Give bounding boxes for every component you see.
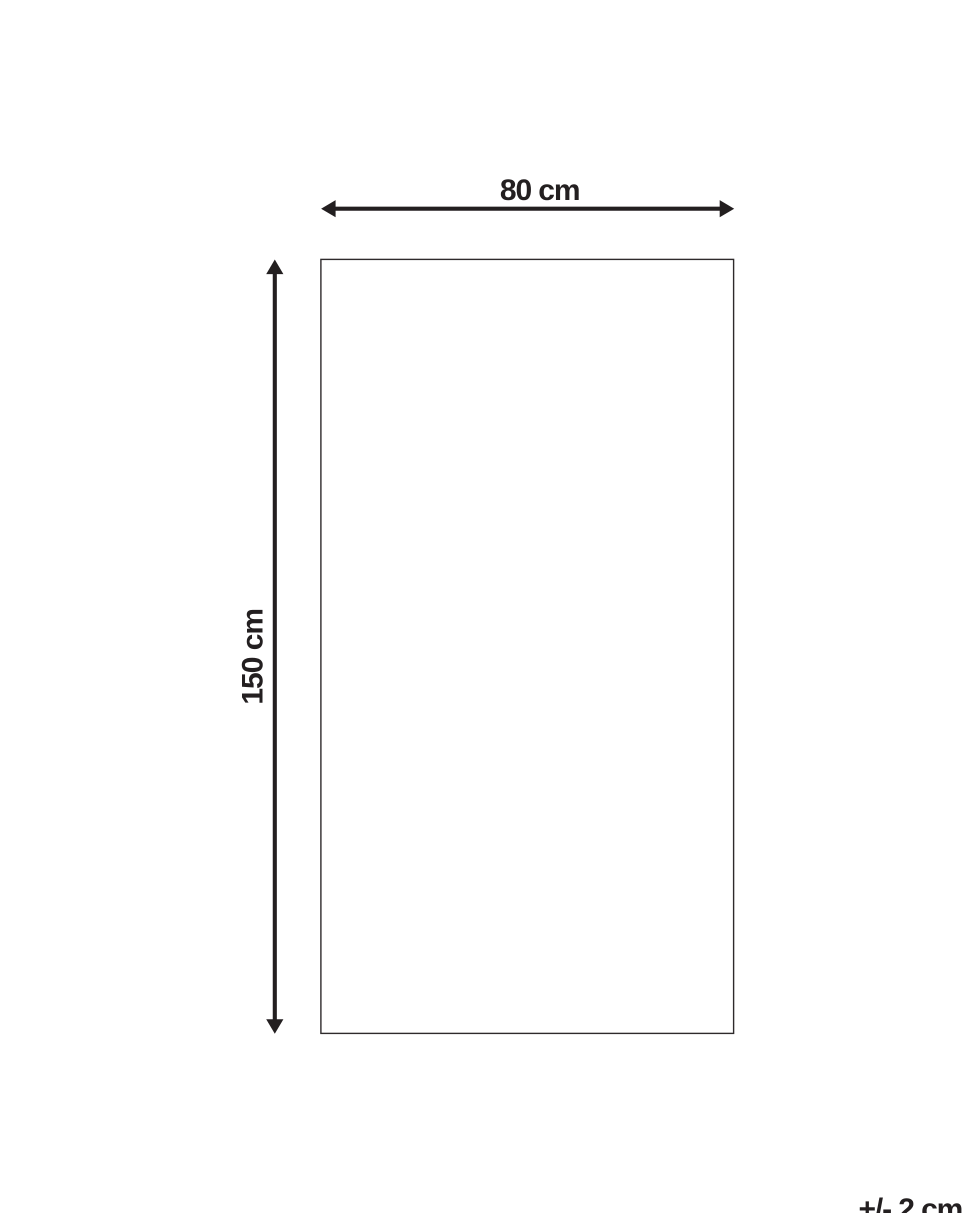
svg-text:150 cm: 150 cm bbox=[237, 609, 270, 705]
svg-text:80 cm: 80 cm bbox=[500, 174, 580, 207]
svg-text:+/- 2 cm: +/- 2 cm bbox=[859, 1193, 963, 1213]
